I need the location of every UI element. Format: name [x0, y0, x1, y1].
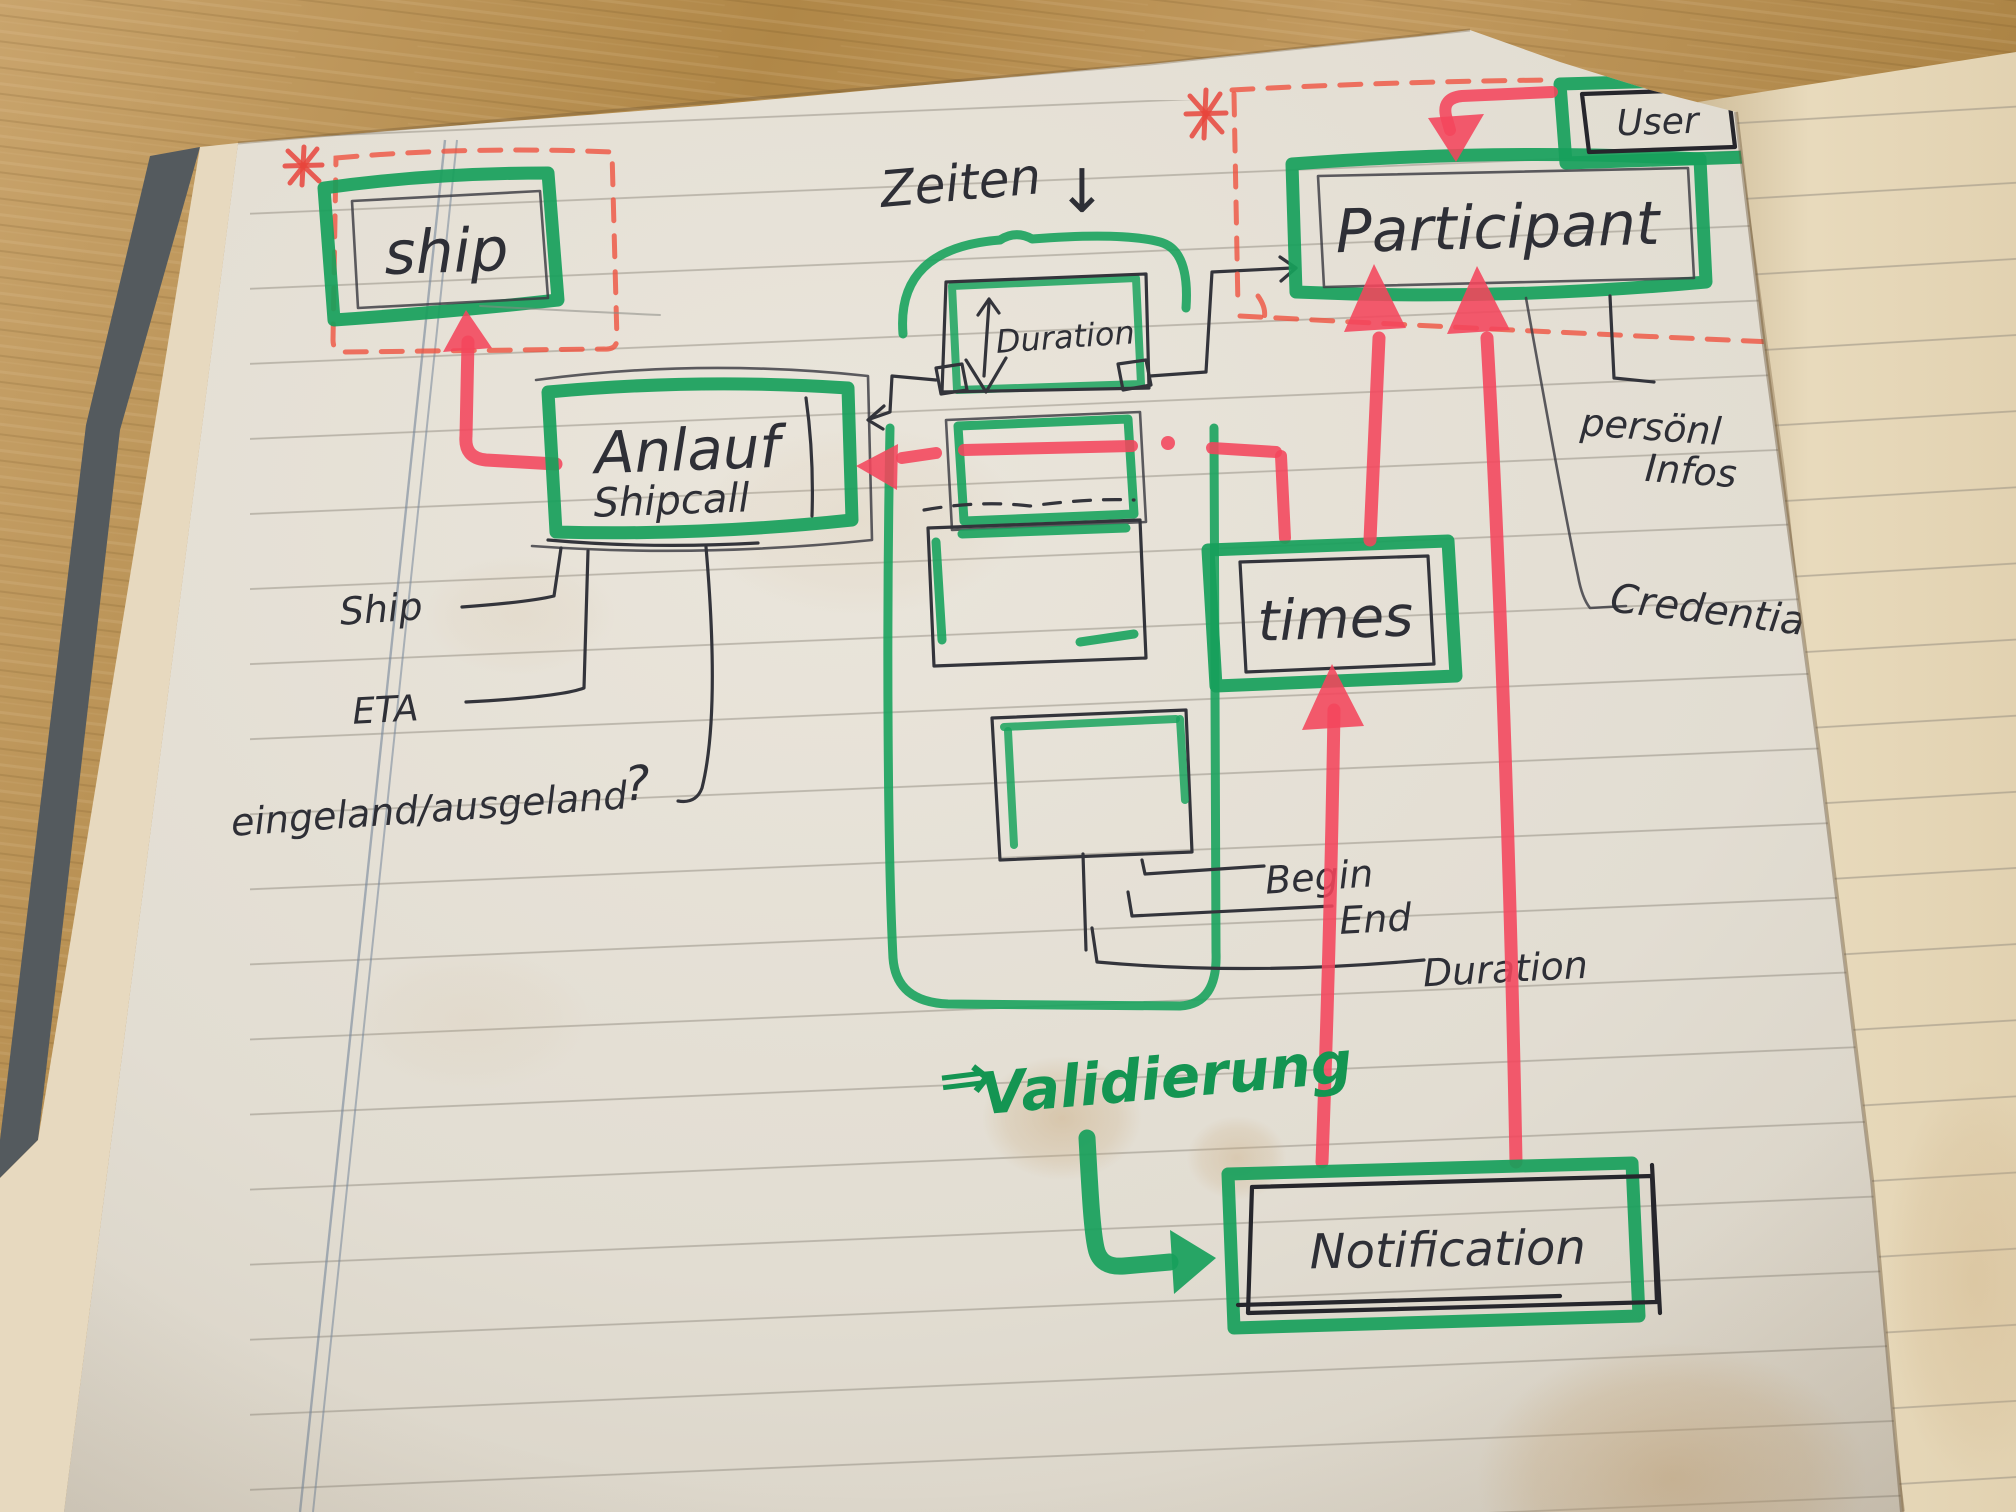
notebook-photo: ship Anlauf Shipcall Ship ETA ? eingelan… [0, 0, 2016, 1512]
page-vignette [64, 30, 1902, 1512]
